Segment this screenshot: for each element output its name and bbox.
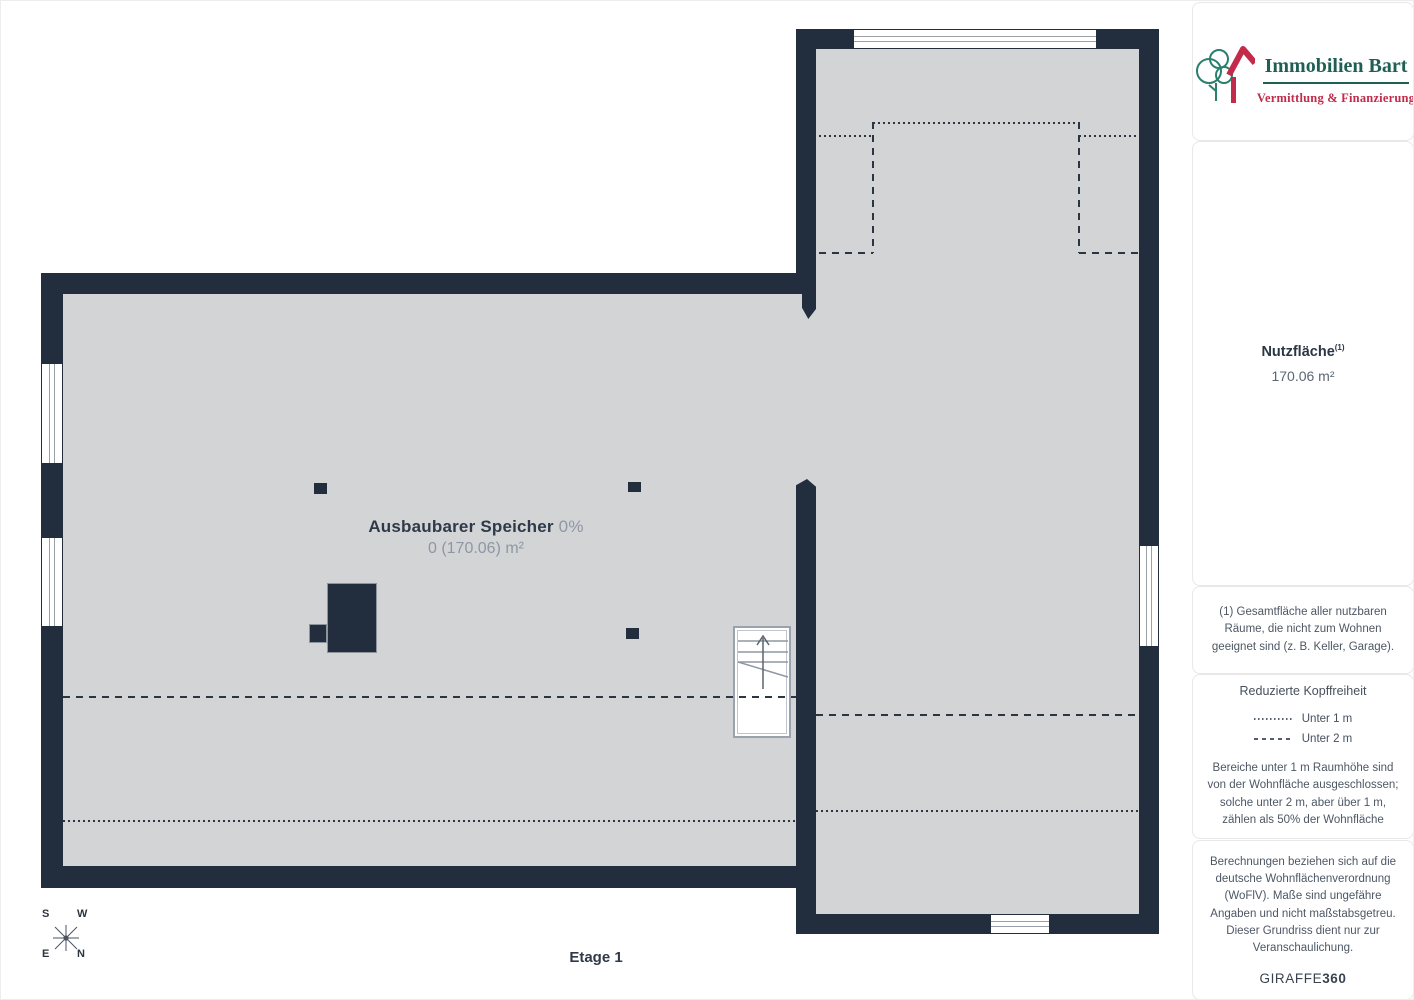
headroom-under-1m-line: [816, 810, 1139, 812]
staircase: [733, 626, 791, 738]
compass-west-label: W: [77, 908, 87, 920]
company-logo: Immobilien Bart Vermittlung & Finanzieru…: [1191, 29, 1414, 115]
wing-right-wall: [1139, 29, 1159, 934]
disclaimer-section: Berechnungen beziehen sich auf die deuts…: [1192, 840, 1414, 1000]
compass-south-label: S: [42, 908, 49, 920]
room-area: 0 (170.06) m²: [301, 540, 651, 558]
headroom-note: Bereiche unter 1 m Raumhöhe sind von der…: [1203, 760, 1403, 829]
brand-name: GIRAFFE: [1259, 971, 1322, 986]
footnote-section: (1) Gesamtfläche aller nutzbaren Räume, …: [1192, 586, 1414, 674]
headroom-title: Reduzierte Kopffreiheit: [1240, 684, 1367, 698]
footnote-reference: (1): [1335, 343, 1345, 352]
room-percentage: 0%: [559, 517, 584, 536]
logo-text: Immobilien Bart Vermittlung & Finanzieru…: [1257, 55, 1414, 106]
wing-room-floor: [814, 49, 1139, 914]
staircase-inner-outline: [737, 630, 787, 734]
footnote-text: (1) Gesamtfläche aller nutzbaren Räume, …: [1205, 604, 1401, 656]
support-post: [314, 483, 327, 494]
brand-mark: GIRAFFE360: [1259, 971, 1346, 986]
headroom-under-2m-line: [1079, 252, 1139, 254]
chimney-block: [327, 583, 377, 653]
company-tagline: Vermittlung & Finanzierung: [1257, 91, 1414, 106]
brand-suffix: 360: [1322, 971, 1346, 986]
window: [42, 538, 62, 626]
main-room-bottom-wall: [41, 866, 816, 888]
wing-left-wall-lower: [796, 491, 816, 934]
staircase-symbol: [738, 631, 788, 735]
room-connector-floor: [796, 301, 816, 496]
main-room-floor: [63, 294, 811, 866]
legend-label: Unter 1 m: [1302, 713, 1353, 725]
disclaimer-text: Berechnungen beziehen sich auf die deuts…: [1205, 854, 1401, 958]
dashed-line-sample: [1254, 738, 1292, 740]
support-post: [628, 482, 641, 492]
headroom-under-2m-line: [816, 714, 1139, 716]
legend-under-1m: Unter 1 m: [1254, 713, 1353, 725]
area-label: Nutzfläche(1): [1261, 343, 1344, 360]
chimney-block-small: [309, 624, 327, 643]
logo-tree-roof-icon: [1191, 29, 1255, 115]
window: [991, 915, 1049, 933]
headroom-under-2m-line: [63, 696, 809, 698]
floorplan-drawing: Ausbaubarer Speicher 0% 0 (170.06) m² S …: [1, 1, 1191, 1000]
support-post: [626, 628, 639, 639]
dotted-line-sample: [1254, 718, 1292, 720]
headroom-legend-section: Reduzierte Kopffreiheit Unter 1 m Unter …: [1192, 674, 1414, 839]
area-value: 170.06 m²: [1271, 368, 1334, 384]
window: [854, 30, 1096, 48]
floorplan-page: Ausbaubarer Speicher 0% 0 (170.06) m² S …: [0, 0, 1414, 1000]
headroom-under-1m-line: [819, 135, 873, 137]
info-sidebar: Immobilien Bart Vermittlung & Finanzieru…: [1191, 1, 1414, 1000]
headroom-under-2m-line: [872, 122, 874, 253]
company-name: Immobilien Bart: [1263, 55, 1410, 84]
window: [42, 364, 62, 463]
headroom-under-1m-line: [63, 820, 809, 822]
headroom-under-2m-line: [819, 252, 873, 254]
floor-title: Etage 1: [1, 949, 1191, 966]
headroom-under-1m-line: [1079, 135, 1139, 137]
window: [1140, 546, 1158, 646]
wing-bottom-wall: [796, 914, 1159, 934]
headroom-under-2m-line: [1078, 122, 1080, 253]
room-name: Ausbaubarer Speicher 0%: [301, 517, 651, 537]
wing-left-wall-upper: [796, 29, 816, 294]
headroom-under-1m-line: [873, 122, 1079, 124]
logo-section: Immobilien Bart Vermittlung & Finanzieru…: [1192, 2, 1414, 141]
legend-under-2m: Unter 2 m: [1254, 733, 1353, 745]
legend-label: Unter 2 m: [1302, 733, 1353, 745]
area-summary-section: Nutzfläche(1) 170.06 m²: [1192, 141, 1414, 586]
main-room-top-wall: [41, 273, 816, 294]
room-label: Ausbaubarer Speicher 0% 0 (170.06) m²: [301, 517, 651, 558]
